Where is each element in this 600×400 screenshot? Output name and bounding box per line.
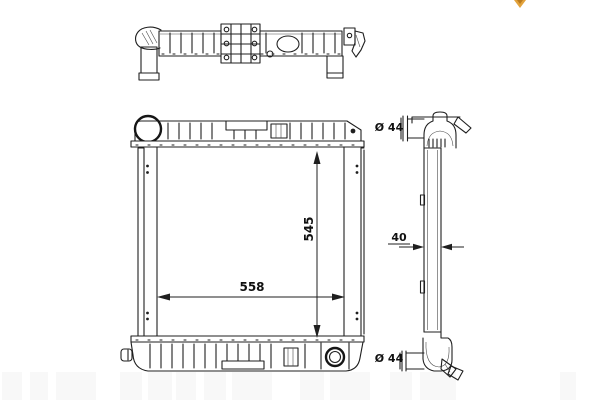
scan-artifact-stripes bbox=[2, 372, 576, 400]
dimension-core-height: 545 bbox=[302, 151, 321, 338]
radiator-side-view bbox=[400, 112, 471, 380]
core-height-label: 545 bbox=[302, 216, 316, 241]
dimension-top-pipe: Ø 44 bbox=[375, 121, 404, 134]
drawing-canvas: 545 558 40 bbox=[0, 0, 600, 400]
radiator-drawing: 545 558 40 bbox=[0, 0, 600, 400]
radiator-top-view bbox=[136, 24, 365, 80]
core-depth-label: 40 bbox=[391, 231, 407, 244]
bottom-pipe-diameter-label: Ø 44 bbox=[375, 352, 404, 365]
top-pipe-diameter-label: Ø 44 bbox=[375, 121, 404, 134]
core-width-label: 558 bbox=[239, 280, 264, 294]
dimension-core-depth: 40 bbox=[388, 231, 464, 250]
radiator-front-view bbox=[121, 116, 364, 371]
watermark-icon bbox=[514, 0, 526, 8]
dimension-bottom-pipe: Ø 44 bbox=[375, 352, 404, 365]
